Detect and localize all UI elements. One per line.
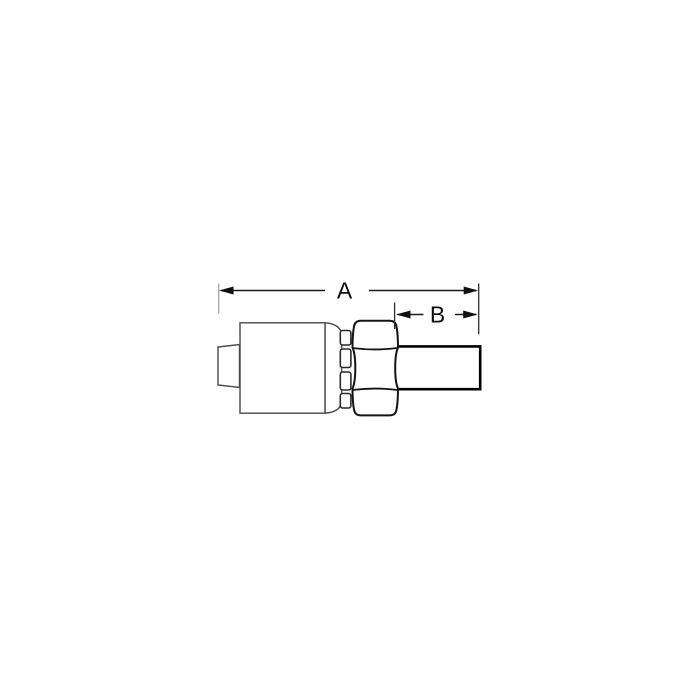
collar-serration: [340, 394, 351, 409]
fitting-diagram: A B: [0, 0, 700, 700]
collar-serration: [340, 372, 351, 390]
collar-serration: [340, 349, 351, 368]
collar-serration: [340, 331, 351, 346]
hose-nipple: [218, 345, 240, 388]
crimp-shell: [240, 323, 325, 413]
dim-b-label: B: [430, 302, 445, 328]
tube-end: [397, 346, 480, 389]
shell-cap: [325, 323, 342, 413]
hex-nut: [353, 321, 399, 416]
dim-a-label: A: [337, 278, 353, 304]
